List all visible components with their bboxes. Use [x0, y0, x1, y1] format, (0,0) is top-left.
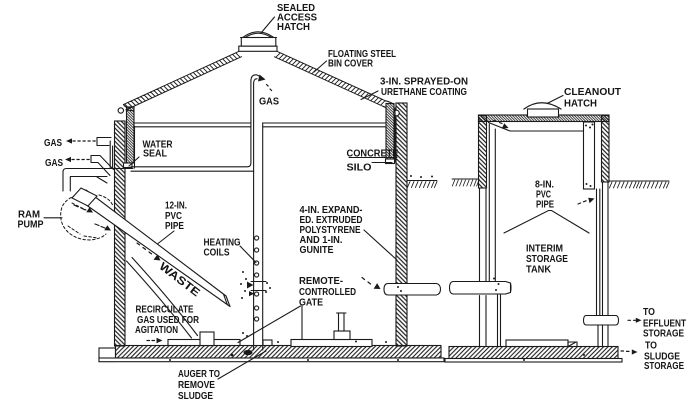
- svg-text:TANK: TANK: [526, 265, 551, 276]
- svg-text:URETHANE COATING: URETHANE COATING: [381, 87, 467, 98]
- svg-text:CLEANOUT: CLEANOUT: [564, 87, 622, 98]
- svg-text:SLUDGE: SLUDGE: [178, 391, 213, 402]
- svg-text:CONTROLLED: CONTROLLED: [299, 287, 356, 298]
- svg-text:REMOVE: REMOVE: [178, 380, 215, 391]
- svg-text:12-IN.: 12-IN.: [165, 201, 187, 212]
- svg-text:GUNITE: GUNITE: [300, 245, 334, 256]
- svg-text:GATE: GATE: [299, 298, 323, 309]
- svg-text:STORAGE: STORAGE: [644, 361, 684, 372]
- svg-text:STORAGE: STORAGE: [643, 329, 684, 340]
- svg-text:PUMP: PUMP: [18, 220, 44, 231]
- svg-text:AUGER TO: AUGER TO: [178, 369, 220, 380]
- svg-text:PIPE: PIPE: [536, 200, 554, 211]
- svg-text:REMOTE-: REMOTE-: [299, 276, 344, 287]
- svg-text:STORAGE: STORAGE: [526, 254, 568, 265]
- svg-text:PIPE: PIPE: [165, 221, 184, 232]
- svg-text:GAS: GAS: [45, 158, 63, 169]
- svg-text:HATCH: HATCH: [564, 99, 597, 110]
- svg-text:3-IN. SPRAYED-ON: 3-IN. SPRAYED-ON: [380, 77, 468, 88]
- svg-text:TO: TO: [645, 341, 657, 352]
- svg-text:GAS: GAS: [44, 138, 62, 149]
- svg-text:RECIRCULATE: RECIRCULATE: [136, 305, 194, 316]
- svg-text:SEAL: SEAL: [143, 149, 167, 160]
- svg-text:SILO: SILO: [347, 163, 372, 174]
- svg-text:TO: TO: [643, 307, 655, 318]
- svg-text:BIN COVER: BIN COVER: [328, 59, 373, 70]
- svg-text:GAS: GAS: [259, 97, 279, 108]
- svg-text:INTERIM: INTERIM: [526, 244, 563, 255]
- svg-text:HATCH: HATCH: [277, 22, 310, 33]
- svg-text:COILS: COILS: [204, 248, 230, 259]
- svg-text:CONCRETE: CONCRETE: [347, 149, 399, 160]
- svg-text:AGITATION: AGITATION: [135, 325, 178, 336]
